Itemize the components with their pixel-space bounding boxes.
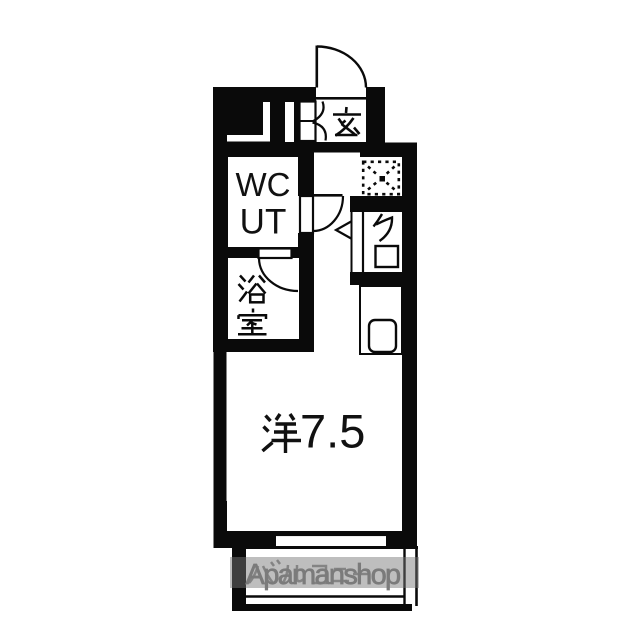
- svg-text:UT: UT: [240, 203, 287, 242]
- svg-text:WC: WC: [236, 166, 291, 203]
- svg-text:Apamanshop: Apamanshop: [246, 559, 400, 591]
- svg-text:7.5: 7.5: [300, 405, 365, 458]
